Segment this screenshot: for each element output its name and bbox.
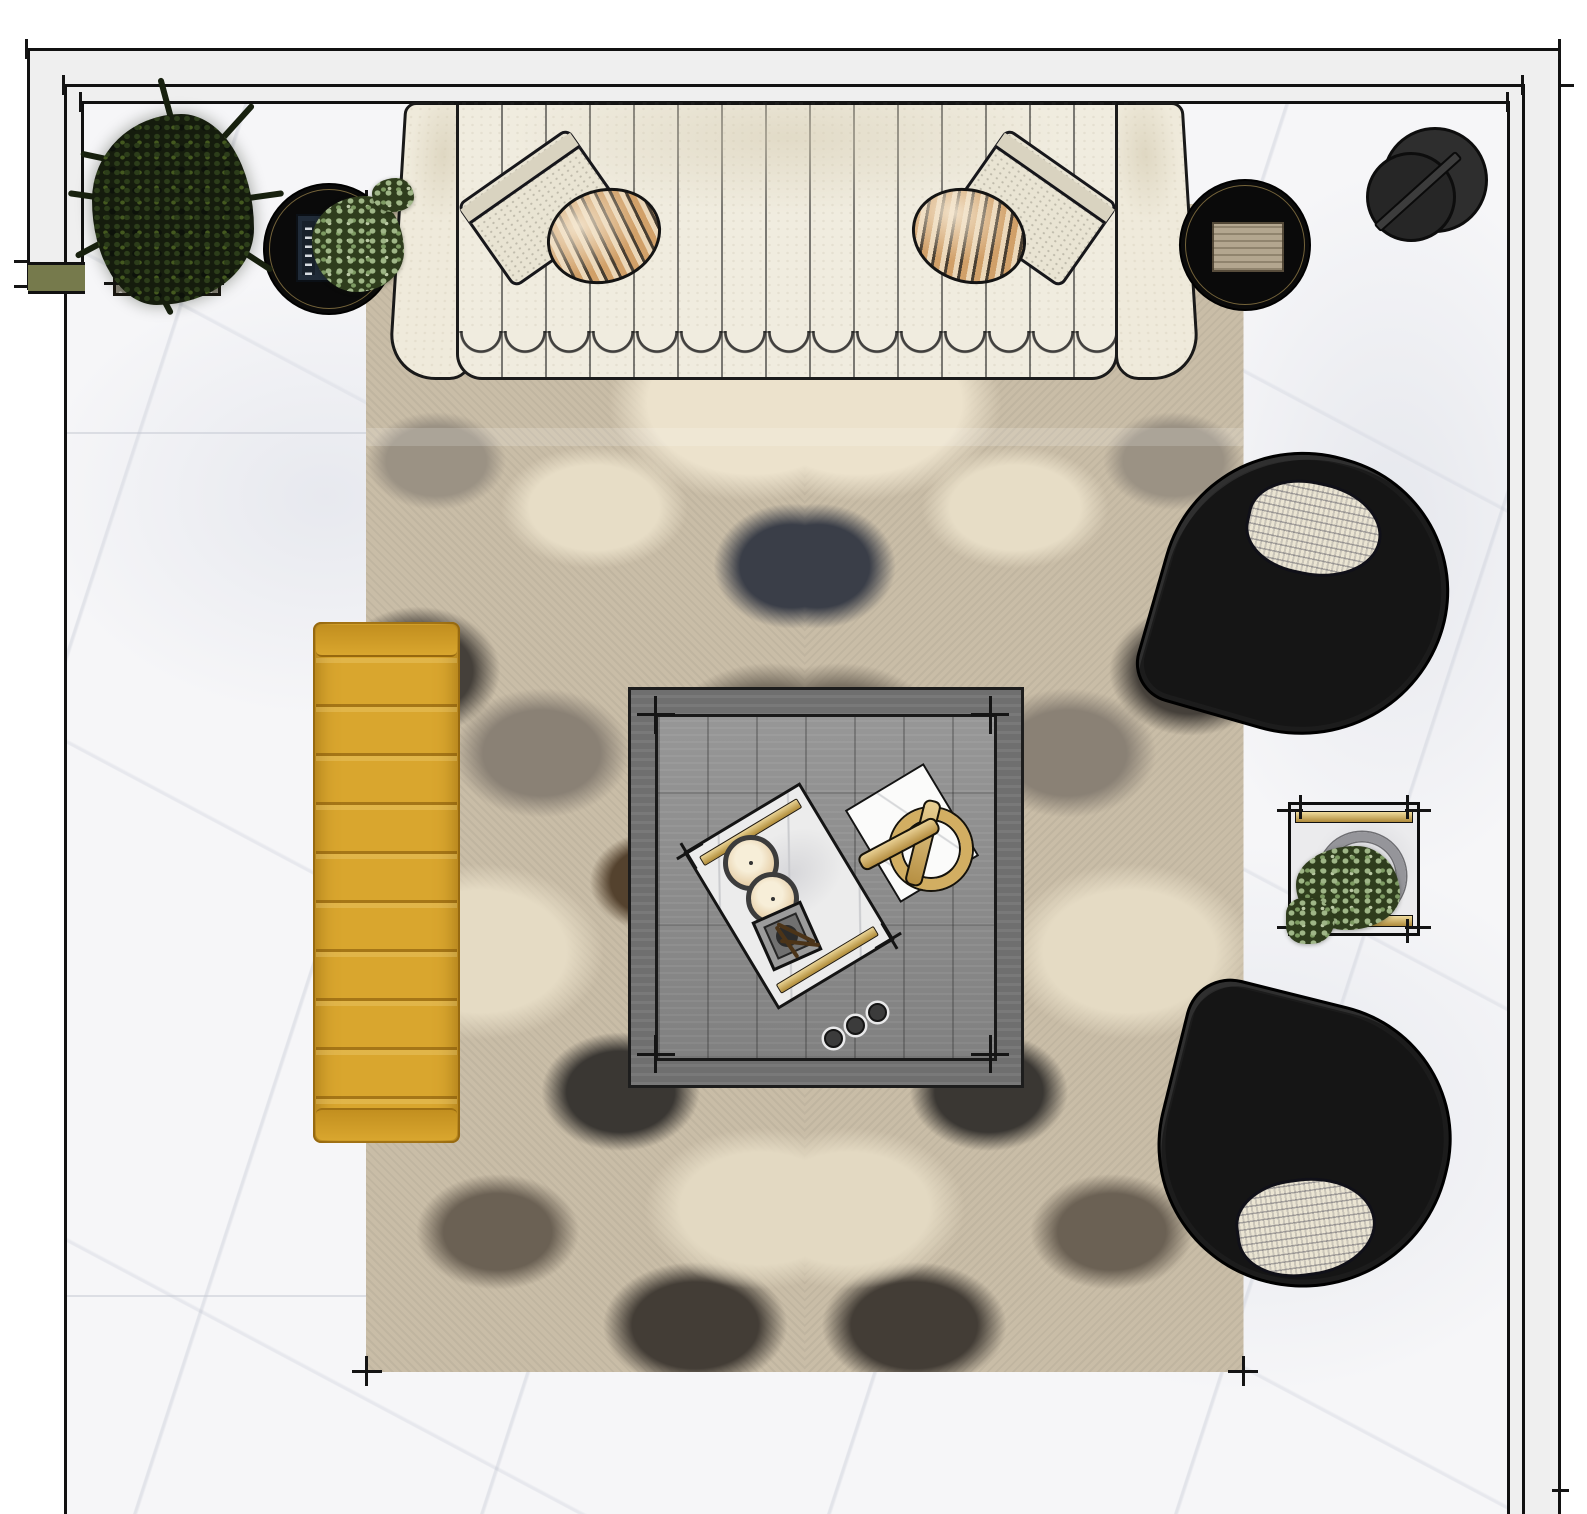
wall-tick [1558,39,1561,59]
planter-tick [1406,795,1409,819]
rug-tick [365,1356,368,1386]
wall-tick [25,39,28,59]
wall-band-right [1507,48,1559,1514]
wall-line [1507,101,1510,1514]
table-tick [654,696,657,734]
bead [846,1016,865,1035]
floor-tile-seam [66,432,366,434]
table-tick [654,1035,657,1073]
wall-tick [1506,92,1509,112]
planter-brass-rail [1295,811,1413,823]
wall-tick [1560,84,1574,87]
wall-line [64,84,67,1514]
wall-line [64,84,1525,87]
wall-line [27,48,1561,51]
wall-tick [1521,75,1524,95]
bench-top-cap [316,625,457,657]
bench-cushion-seams [316,658,457,1107]
eucalyptus-trail [1286,898,1334,944]
tree-canopy [92,114,254,305]
floor-tile-seam [66,1295,366,1297]
sofa-back-tufting [430,101,1136,105]
wall-tick [1552,1489,1569,1492]
bench[interactable] [313,622,460,1143]
table-plant-sprig [372,178,414,212]
tree-foliage [78,98,268,323]
planter-tick [1299,795,1302,819]
bead [868,1003,887,1022]
rug-tick [1242,1356,1245,1386]
wall-line [27,48,30,290]
door-tick [14,260,28,263]
wall-line [1522,84,1525,1514]
door-tick [14,285,28,288]
wall-line [1558,48,1561,1514]
planter-tick [1406,919,1409,943]
wood-tray [1212,222,1284,272]
wall-band-top [28,48,1559,103]
table-tick [989,1035,992,1073]
sofa-seat-cushions [459,331,1115,377]
rug-highlight-band [366,428,1243,446]
bench-bottom-cap [316,1108,457,1140]
wall-tick [62,75,65,95]
door-marker[interactable] [28,262,85,294]
floor-plan-canvas [0,0,1587,1514]
table-tick [989,696,992,734]
bead [824,1029,843,1048]
